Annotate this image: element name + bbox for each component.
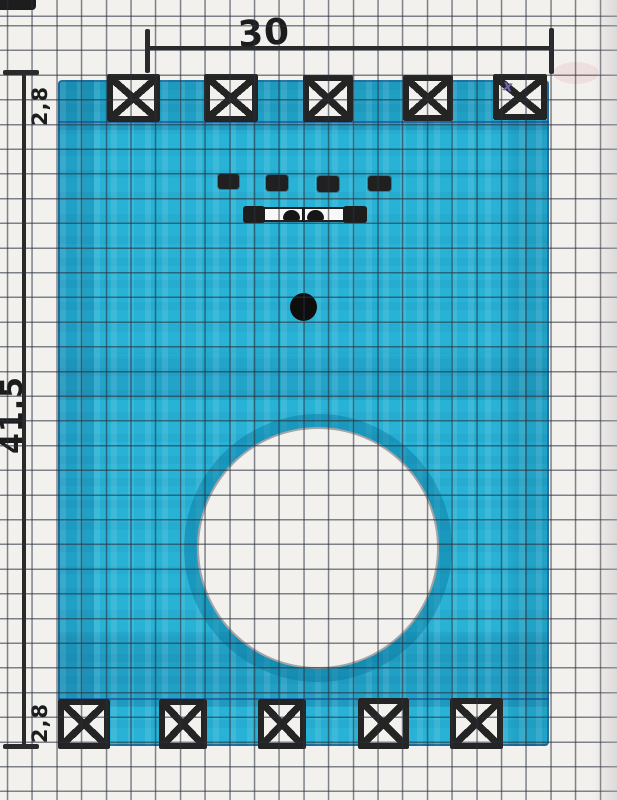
strip-divider (302, 207, 305, 222)
dimension-width-line (148, 46, 552, 50)
dimension-width-tick-right (549, 28, 554, 74)
crossed-square-bottom-2 (159, 699, 207, 749)
strip-left-cap (243, 206, 265, 223)
circular-cutout (197, 427, 439, 669)
crossed-square-top-5 (493, 74, 547, 120)
crossed-square-top-4 (403, 75, 453, 121)
crossed-square-top-1 (107, 74, 160, 122)
button-chip-1 (218, 174, 239, 189)
crossed-square-top-3 (303, 75, 353, 122)
dimension-width-label: 30 (239, 12, 290, 53)
center-hole-dot (290, 293, 317, 321)
crossed-square-bottom-1 (58, 699, 110, 749)
strip-right-cap (343, 206, 367, 223)
crossed-square-bottom-3 (258, 699, 306, 749)
dimension-height-label: 41.5 (0, 365, 27, 465)
button-chip-4 (368, 176, 391, 191)
crossed-square-bottom-4 (358, 698, 409, 749)
crossed-square-top-2 (204, 74, 258, 122)
button-chip-2 (266, 175, 288, 191)
strip-dome-1 (283, 210, 300, 220)
dimension-width-tick-left (145, 29, 150, 73)
terminal-strip (243, 207, 367, 222)
dimension-height-tick-top (3, 70, 39, 75)
crossed-square-bottom-5 (450, 698, 503, 749)
corner-ink-mark (0, 0, 36, 10)
graph-paper: x 30 41.5 2,8 2,8 (0, 0, 617, 800)
pink-smudge (553, 62, 599, 84)
dimension-top-band-label: 2,8 (29, 77, 51, 135)
strip-dome-2 (307, 210, 324, 220)
scan-edge-shade (592, 0, 617, 800)
button-chip-3 (317, 176, 339, 192)
dimension-bottom-band-label: 2,8 (29, 694, 51, 752)
